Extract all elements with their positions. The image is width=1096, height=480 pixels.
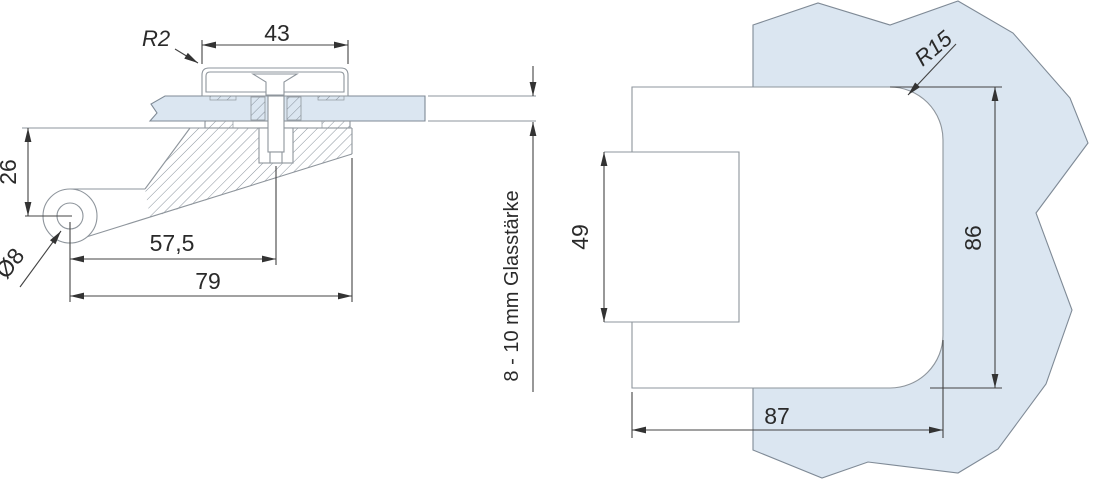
screw-tip [270,152,282,163]
bushing-left [251,97,265,120]
washer-hatch-right [322,121,350,128]
bushing-right [287,97,301,120]
dim-79-label: 79 [195,268,221,294]
side-tab-fill [604,152,739,322]
dim-r2-label: R2 [142,26,170,51]
drawing-canvas: 43 R2 26 Ø8 57,5 79 8 - 10 mm Glasstärke… [0,0,1096,480]
right-view-front: R15 49 86 87 [567,1,1088,478]
dim-49-label: 49 [567,224,593,250]
gasket-right [318,96,344,100]
washer-hatch-left [205,121,233,128]
technical-drawing: 43 R2 26 Ø8 57,5 79 8 - 10 mm Glasstärke… [0,0,1096,480]
dim-575-label: 57,5 [150,230,195,256]
screw-shaft [268,96,284,152]
gasket-left [210,96,236,100]
glass-thickness-label: 8 - 10 mm Glasstärke [501,190,523,381]
dim-d8-label: Ø8 [0,243,29,283]
hinge-body-hatch [145,128,352,218]
left-view-section: 43 R2 26 Ø8 57,5 79 8 - 10 mm Glasstärke [0,20,536,392]
dim-86-label: 86 [960,225,986,251]
leader-r2 [175,49,198,63]
dim-87-label: 87 [764,403,790,429]
dim-26-label: 26 [0,159,21,185]
dim-43-label: 43 [264,20,290,46]
